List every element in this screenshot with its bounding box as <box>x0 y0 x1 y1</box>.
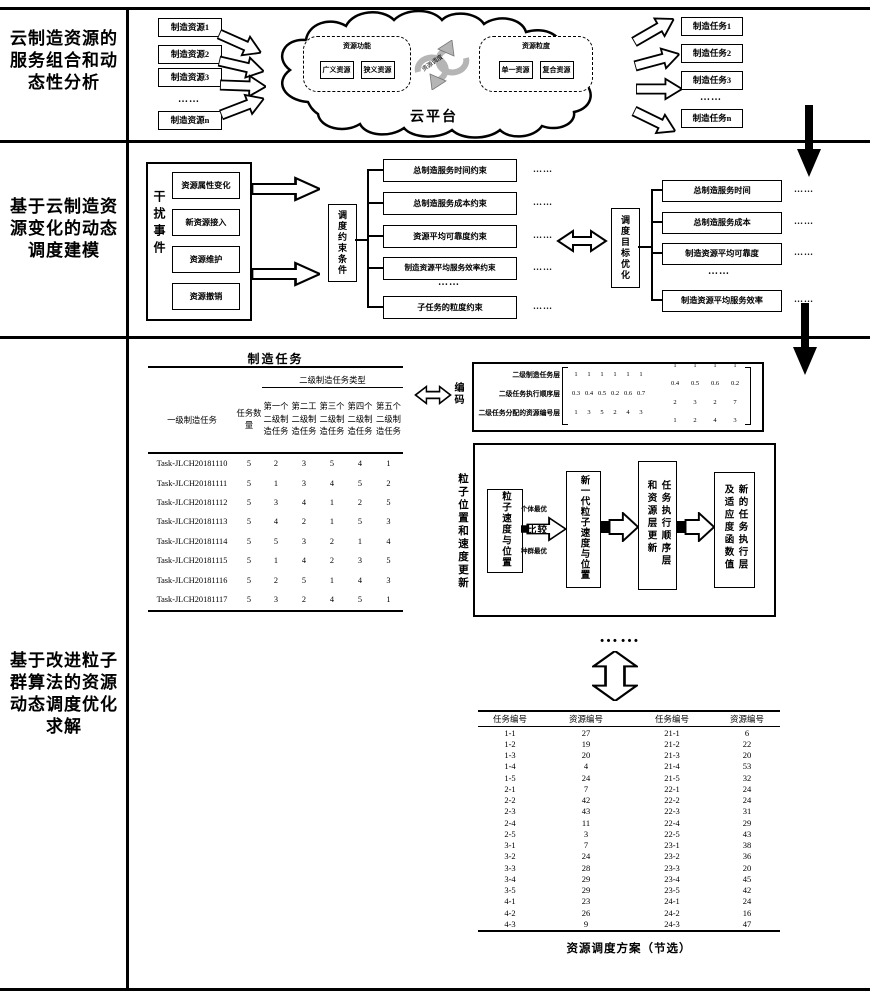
divider-line <box>0 140 870 143</box>
table-cell: 3 <box>262 595 290 604</box>
table-cell: 23-2 <box>630 851 714 861</box>
task-box: 制造任务1 <box>681 17 743 36</box>
table-row: 4-3924-347 <box>478 918 780 929</box>
matrix-value: 3 <box>634 408 648 417</box>
table-cell: Task-JLCH20181112 <box>148 498 236 507</box>
ellipsis-label: …… <box>521 164 565 174</box>
resource-box: 制造资源3 <box>158 68 222 87</box>
ellipsis-label: …… <box>782 247 826 257</box>
connector-line <box>638 246 651 248</box>
table-border <box>148 366 403 368</box>
table-cell: 42 <box>542 795 630 805</box>
matrix-value: 1 <box>686 361 704 370</box>
table-cell: 3-2 <box>478 851 542 861</box>
disturbance-event-box: 新资源接入 <box>172 209 240 236</box>
section3-title: 基于改进粒子群算法的资源动态调度优化求解 <box>10 650 118 738</box>
table-row: 2-41122-429 <box>478 817 780 828</box>
table-cell: 7 <box>542 784 630 794</box>
table-cell: 23-3 <box>630 863 714 873</box>
matrix-value: 1 <box>706 361 724 370</box>
table-cell: 1 <box>262 556 290 565</box>
table-cell: 1 <box>374 459 403 468</box>
thick-arrow-icon <box>600 512 640 542</box>
table-cell: 45 <box>714 874 780 884</box>
table-cell: 3 <box>290 459 318 468</box>
table-cell: 24-2 <box>630 908 714 918</box>
objective-hub-label: 调度目标优化 <box>619 215 632 281</box>
table-cell: 1 <box>318 517 346 526</box>
divider-line <box>0 7 870 10</box>
disturbance-event-box: 资源属性变化 <box>172 172 240 199</box>
matrix-value: 1 <box>569 370 583 379</box>
table-cell: 53 <box>714 761 780 771</box>
group-header-cell: 二级制造任务类型 <box>262 374 403 386</box>
constraint-hub-label: 调度约束条件 <box>336 210 349 276</box>
group-title: 资源功能 <box>304 41 410 51</box>
table-row: 1-12721-16 <box>478 727 780 738</box>
table-cell: 4-1 <box>478 896 542 906</box>
branch-stub-line <box>652 189 662 191</box>
layer-update-box: 任务执行顺序层和资源层更新 <box>638 461 677 590</box>
table-cell: 5 <box>374 556 403 565</box>
table-row: 3-42923-445 <box>478 873 780 884</box>
column-header: 任务编号 <box>478 713 542 725</box>
divider-line <box>126 7 129 991</box>
table-cell: 43 <box>542 806 630 816</box>
table-cell: 2-3 <box>478 806 542 816</box>
single-resource-box: 单一资源 <box>499 61 533 79</box>
sub-col-header: 第二工二级制造任务 <box>290 392 318 448</box>
matrix-value: 1 <box>666 361 684 370</box>
table-row: 1-4421-453 <box>478 761 780 772</box>
table-cell: 22-4 <box>630 818 714 828</box>
table-row: 2-5322-543 <box>478 828 780 839</box>
table-cell: 24 <box>542 851 630 861</box>
resource-box: 制造资源n <box>158 111 222 130</box>
table-cell: 4 <box>290 556 318 565</box>
table-cell: 3 <box>290 537 318 546</box>
table-cell: 21-3 <box>630 750 714 760</box>
sub-col-header: 第五个二级制造任务 <box>374 392 403 448</box>
table-cell: 3 <box>290 479 318 488</box>
individual-best-label: 个体最优 <box>521 503 547 513</box>
arrow-right-icon <box>252 261 320 287</box>
table-cell: 5 <box>236 537 262 546</box>
table-row: Task-JLCH20181115514235 <box>148 551 403 570</box>
encoding-label: 编码 <box>450 382 465 406</box>
table-cell: Task-JLCH20181117 <box>148 595 236 604</box>
branch-stub-line <box>368 202 383 204</box>
table-cell: 43 <box>714 829 780 839</box>
matrix-value: 1 <box>634 370 648 379</box>
matrix-value: 0.6 <box>706 379 724 388</box>
table-cell: 31 <box>714 806 780 816</box>
table-cell: 5 <box>236 556 262 565</box>
table-row: Task-JLCH20181116525143 <box>148 570 403 589</box>
branch-stub-line <box>368 267 383 269</box>
branch-stub-line <box>368 235 383 237</box>
new-particle-label: 新一代粒子速度与位置 <box>577 475 591 585</box>
new-particle-box: 新一代粒子速度与位置 <box>566 471 601 588</box>
compare-label: 比较 <box>527 522 548 536</box>
matrix-value: 2 <box>686 416 704 425</box>
table-header-row: 任务编号资源编号任务编号资源编号 <box>478 712 780 725</box>
table-cell: 5 <box>236 576 262 585</box>
task-box: 制造任务n <box>681 109 743 128</box>
table-cell: Task-JLCH20181115 <box>148 556 236 565</box>
table-cell: 4 <box>374 537 403 546</box>
table-cell: 24-3 <box>630 919 714 929</box>
matrix-value: 1 <box>608 370 622 379</box>
table-cell: 3 <box>346 556 374 565</box>
double-arrow-icon <box>556 228 608 254</box>
column-header: 任务编号 <box>630 713 714 725</box>
matrix-value: 0.4 <box>666 379 684 388</box>
table-cell: 3 <box>542 829 630 839</box>
table-cell: 22-1 <box>630 784 714 794</box>
matrix-value: 1 <box>666 416 684 425</box>
table-row: 1-21921-222 <box>478 738 780 749</box>
table-cell: 27 <box>542 728 630 738</box>
table-cell: 22-2 <box>630 795 714 805</box>
table-cell: 38 <box>714 840 780 850</box>
table-cell: 23-5 <box>630 885 714 895</box>
ellipsis-label: …… <box>782 184 826 194</box>
table-cell: 2-5 <box>478 829 542 839</box>
arrow-right-icon <box>252 176 320 202</box>
table-cell: 4-3 <box>478 919 542 929</box>
table-cell: 2 <box>290 517 318 526</box>
matrix-value: 2 <box>706 398 724 407</box>
table-row: 2-34322-331 <box>478 806 780 817</box>
double-vertical-arrow-icon <box>592 651 638 701</box>
table-cell: 23 <box>542 896 630 906</box>
sub-col-header: 第一个二级制造任务 <box>262 392 290 448</box>
table-cell: Task-JLCH20181111 <box>148 479 236 488</box>
table-cell: Task-JLCH20181114 <box>148 537 236 546</box>
sub-col-header: 第三个二级制造任务 <box>318 392 346 448</box>
matrix-value: 2 <box>666 398 684 407</box>
arrow-right-icon <box>636 77 682 101</box>
table-row: Task-JLCH20181111513452 <box>148 473 403 492</box>
table-cell: 24 <box>542 773 630 783</box>
table-cell: 22 <box>714 739 780 749</box>
table-cell: 2-4 <box>478 818 542 828</box>
task-box: 制造任务2 <box>681 44 743 63</box>
table-cell: 4 <box>318 479 346 488</box>
table-cell: 20 <box>542 750 630 760</box>
cloud-platform-label: 云平台 <box>410 106 458 126</box>
group-items: 单一资源 复合资源 <box>480 61 592 79</box>
divider-line <box>0 988 870 991</box>
branch-stub-line <box>652 221 662 223</box>
composite-resource-box: 复合资源 <box>540 61 574 79</box>
task-box: 制造任务3 <box>681 71 743 90</box>
table-cell: 5 <box>262 537 290 546</box>
table-cell: 5 <box>318 459 346 468</box>
disturbance-label: 干扰事件 <box>151 190 168 258</box>
table-cell: 4 <box>318 595 346 604</box>
table-cell: Task-JLCH20181116 <box>148 576 236 585</box>
matrix-bracket-left <box>562 367 568 425</box>
disturbance-event-box: 资源维护 <box>172 246 240 273</box>
constraint-box: 总制造服务时间约束 <box>383 159 517 182</box>
ellipsis-label: …… <box>782 216 826 226</box>
table-cell: 2 <box>346 498 374 507</box>
encoding-row-label: 二级制造任务层 <box>476 369 560 379</box>
matrix-value: 4 <box>621 408 635 417</box>
matrix-value: 3 <box>582 408 596 417</box>
table-cell: 4 <box>542 761 630 771</box>
table-row: 3-1723-138 <box>478 840 780 851</box>
table-cell: 21-1 <box>630 728 714 738</box>
table-cell: 5 <box>236 459 262 468</box>
table-cell: 11 <box>542 818 630 828</box>
table-cell: 24 <box>714 896 780 906</box>
table-row: Task-JLCH20181113542153 <box>148 512 403 531</box>
thick-arrow-icon <box>676 512 716 542</box>
constraint-box: 子任务的粒度约束 <box>383 296 517 319</box>
ellipsis-label: …… <box>521 301 565 311</box>
table-cell: 24 <box>714 784 780 794</box>
matrix-value: 0.6 <box>621 389 635 398</box>
table-row: Task-JLCH20181117532451 <box>148 590 403 609</box>
table-cell: 5 <box>236 498 262 507</box>
ellipsis-label: …… <box>688 266 750 277</box>
table-cell: 22-3 <box>630 806 714 816</box>
ellipsis-label: …… <box>158 94 220 105</box>
table-cell: 5 <box>236 479 262 488</box>
ellipsis-label: …… <box>681 92 741 103</box>
resource-function-group: 资源功能 广义资源 狭义资源 <box>303 36 411 92</box>
table-cell: 3-3 <box>478 863 542 873</box>
table-cell: 1 <box>346 537 374 546</box>
table-cell: 4 <box>346 576 374 585</box>
table-cell: 1 <box>318 576 346 585</box>
table-cell: 5 <box>236 517 262 526</box>
encoding-row-label: 二级任务执行顺序层 <box>476 388 560 398</box>
column-header: 资源编号 <box>542 713 630 725</box>
constraint-hub-box: 调度约束条件 <box>328 204 357 282</box>
objective-hub-box: 调度目标优化 <box>611 208 640 288</box>
table-row: 4-22624-216 <box>478 907 780 918</box>
table-cell: 4 <box>290 498 318 507</box>
matrix-value: 0.2 <box>608 389 622 398</box>
table-cell: 4-2 <box>478 908 542 918</box>
matrix-value: 0.5 <box>595 389 609 398</box>
table-cell: 5 <box>346 595 374 604</box>
table-row: 3-52923-542 <box>478 885 780 896</box>
table-cell: 2 <box>318 537 346 546</box>
branch-stub-line <box>652 252 662 254</box>
matrix-bracket-right <box>745 367 751 425</box>
matrix-value: 0.7 <box>634 389 648 398</box>
branch-stub-line <box>652 299 662 301</box>
table-cell: 26 <box>542 908 630 918</box>
table-cell: 6 <box>714 728 780 738</box>
table-cell: 1-3 <box>478 750 542 760</box>
objective-box: 制造资源平均服务效率 <box>662 290 782 312</box>
particle-state-label: 粒子速度与位置 <box>498 491 512 571</box>
table-cell: 2-1 <box>478 784 542 794</box>
table-cell: 21-5 <box>630 773 714 783</box>
table-cell: 1 <box>318 498 346 507</box>
table-cell: 23-1 <box>630 840 714 850</box>
branch-stub-line <box>368 306 383 308</box>
fitness-label: 新的任务执行层及适应度函数值 <box>721 484 749 576</box>
pso-section-label: 粒子位置和速度更新 <box>455 473 470 603</box>
table-cell: 29 <box>542 885 630 895</box>
ellipsis-label: …… <box>418 277 480 288</box>
table-cell: 3 <box>374 576 403 585</box>
divider-line <box>0 336 870 339</box>
resource-box: 制造资源2 <box>158 45 222 64</box>
table-cell: 24 <box>714 795 780 805</box>
table-cell: 29 <box>542 874 630 884</box>
table-row: 1-52421-532 <box>478 772 780 783</box>
matrix-value: 1 <box>582 370 596 379</box>
matrix-value: 2 <box>608 408 622 417</box>
table-cell: 20 <box>714 863 780 873</box>
table-row: 2-1722-124 <box>478 783 780 794</box>
table-cell: 3 <box>374 517 403 526</box>
layer-update-label: 任务执行顺序层和资源层更新 <box>644 480 672 572</box>
table-cell: 32 <box>714 773 780 783</box>
table-cell: 47 <box>714 919 780 929</box>
column-header: 资源编号 <box>714 713 780 725</box>
table-cell: 7 <box>542 840 630 850</box>
particle-state-box: 粒子速度与位置 <box>487 489 523 573</box>
table-cell: 42 <box>714 885 780 895</box>
fitness-box: 新的任务执行层及适应度函数值 <box>714 472 755 588</box>
table-cell: 36 <box>714 851 780 861</box>
table-cell: 3-5 <box>478 885 542 895</box>
branch-trunk-line <box>651 189 653 301</box>
table-cell: Task-JLCH20181113 <box>148 517 236 526</box>
narrow-resource-box: 狭义资源 <box>361 61 395 79</box>
matrix-value: 1 <box>569 408 583 417</box>
table-cell: 2 <box>290 595 318 604</box>
section2-title: 基于云制造资源变化的动态调度建模 <box>10 196 118 262</box>
matrix-value: 0.3 <box>569 389 583 398</box>
matrix-value: 1 <box>621 370 635 379</box>
table-cell: 19 <box>542 739 630 749</box>
table-cell: 1 <box>262 479 290 488</box>
count-col-header: 任务数量 <box>236 392 262 448</box>
constraint-box: 总制造服务成本约束 <box>383 192 517 215</box>
section1-title: 云制造资源的服务组合和动态性分析 <box>10 28 118 94</box>
table-cell: 5 <box>346 517 374 526</box>
table-cell: 22-5 <box>630 829 714 839</box>
table-cell: 4 <box>262 517 290 526</box>
table-cell: 1-5 <box>478 773 542 783</box>
table-cell: 5 <box>346 479 374 488</box>
disturbance-event-box: 资源撤销 <box>172 283 240 310</box>
primary-col-header: 一级制造任务 <box>148 392 236 448</box>
table-cell: 3-1 <box>478 840 542 850</box>
table-row: 1-32021-320 <box>478 750 780 761</box>
matrix-value: 3 <box>686 398 704 407</box>
table-cell: 3-4 <box>478 874 542 884</box>
table-cell: 29 <box>714 818 780 828</box>
table-cell: 16 <box>714 908 780 918</box>
table-cell: 2-2 <box>478 795 542 805</box>
table-cell: 1-4 <box>478 761 542 771</box>
table-cell: 1-1 <box>478 728 542 738</box>
table-cell: 5 <box>374 498 403 507</box>
objective-box: 总制造服务时间 <box>662 180 782 202</box>
table-cell: 9 <box>542 919 630 929</box>
matrix-value: 4 <box>706 416 724 425</box>
table-cell: 3 <box>262 498 290 507</box>
objective-box: 总制造服务成本 <box>662 212 782 234</box>
table-cell: 21-4 <box>630 761 714 771</box>
branch-trunk-line <box>367 169 369 308</box>
table-cell: 2 <box>262 459 290 468</box>
matrix-value: 0.2 <box>726 379 744 388</box>
table-cell: 1-2 <box>478 739 542 749</box>
table-cell: 2 <box>374 479 403 488</box>
table-row: 3-32823-320 <box>478 862 780 873</box>
table-row: 4-12324-124 <box>478 896 780 907</box>
iteration-ellipsis: …… <box>545 626 695 648</box>
constraint-box: 资源平均可靠度约束 <box>383 225 517 248</box>
objective-box: 制造资源平均可靠度 <box>662 243 782 265</box>
manufacturing-task-table: 二级制造任务类型一级制造任务任务数量第一个二级制造任务第二工二级制造任务第三个二… <box>148 366 403 612</box>
table-row: Task-JLCH20181110523541 <box>148 454 403 473</box>
table-cell: 23-4 <box>630 874 714 884</box>
ellipsis-label: …… <box>521 197 565 207</box>
group-title: 资源粒度 <box>480 41 592 51</box>
table-cell: 24-1 <box>630 896 714 906</box>
cloud-manufacturing-scheduling-diagram: 云制造资源的服务组合和动态性分析 基于云制造资源变化的动态调度建模 基于改进粒子… <box>0 0 870 1000</box>
schedule-caption: 资源调度方案（节选） <box>478 940 780 956</box>
table-border <box>478 930 780 932</box>
table-row: Task-JLCH20181112534125 <box>148 493 403 512</box>
resource-granularity-group: 资源粒度 单一资源 复合资源 <box>479 36 593 92</box>
matrix-value: 5 <box>595 408 609 417</box>
table-cell: 20 <box>714 750 780 760</box>
table-border <box>148 610 403 612</box>
matrix-value: 7 <box>726 398 744 407</box>
table-cell: Task-JLCH20181110 <box>148 459 236 468</box>
generalized-resource-box: 广义资源 <box>320 61 354 79</box>
group-items: 广义资源 狭义资源 <box>304 61 410 79</box>
table-cell: 2 <box>318 556 346 565</box>
task-table-title: 制造任务 <box>148 350 403 367</box>
encoding-row-label: 二级任务分配的资源编号层 <box>476 407 560 417</box>
table-cell: 4 <box>346 459 374 468</box>
ellipsis-label: …… <box>521 262 565 272</box>
table-cell: 2 <box>262 576 290 585</box>
table-row: Task-JLCH20181114553214 <box>148 532 403 551</box>
table-cell: 21-2 <box>630 739 714 749</box>
table-cell: 5 <box>236 595 262 604</box>
flow-down-arrow <box>792 302 818 376</box>
sub-col-header: 第四个二级制造任务 <box>346 392 374 448</box>
matrix-value: 0.5 <box>686 379 704 388</box>
resource-box: 制造资源1 <box>158 18 222 37</box>
matrix-value: 1 <box>726 361 744 370</box>
table-rule <box>262 387 403 388</box>
swarm-best-label: 种群最优 <box>521 545 547 555</box>
table-row: 3-22423-236 <box>478 851 780 862</box>
table-cell: 1 <box>374 595 403 604</box>
branch-stub-line <box>368 169 383 171</box>
encoding-matrix-box: 二级制造任务层二级任务执行顺序层二级任务分配的资源编号层1111110.30.4… <box>472 362 764 432</box>
table-row: 2-24222-224 <box>478 795 780 806</box>
table-cell: 5 <box>290 576 318 585</box>
